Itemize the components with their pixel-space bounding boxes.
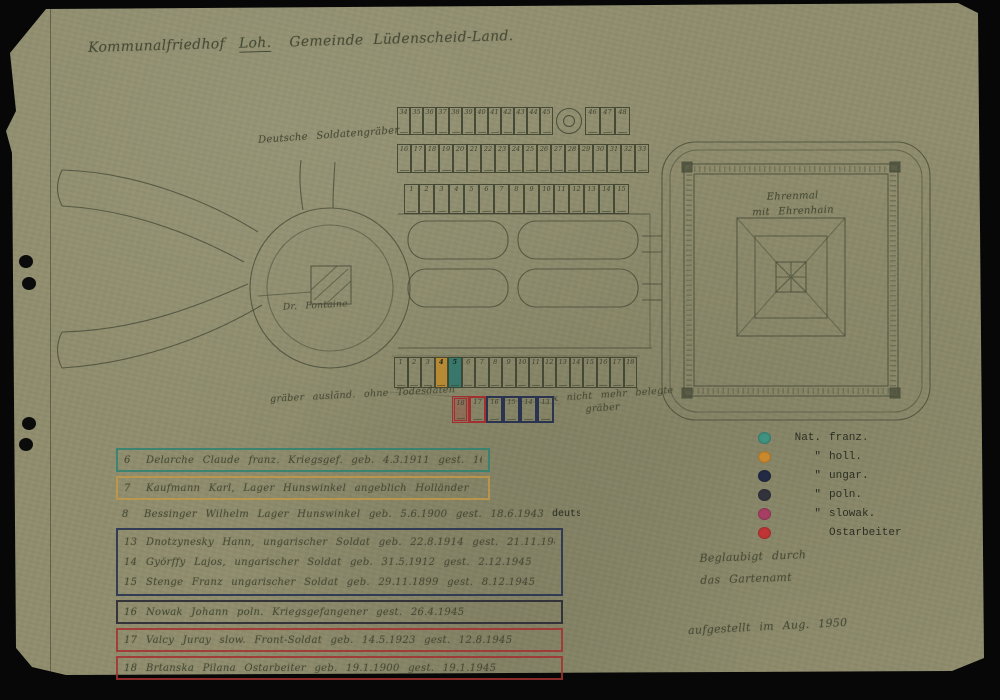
- grave-cell: 18: [624, 357, 638, 388]
- grave-cell: 19: [439, 144, 453, 173]
- grave-note-number: 7: [124, 483, 138, 494]
- grave-number: 12: [545, 359, 553, 366]
- grave-inscription-scribble: [470, 167, 479, 171]
- grave-inscription-scribble: [407, 208, 416, 212]
- grave-note-number: 6: [124, 455, 138, 466]
- legend-ditto-mark: Nat.: [785, 432, 821, 444]
- grave-number: 40: [477, 109, 485, 116]
- grave-note-text: Bessinger Wilhelm Lager Hunswinkel geb. …: [144, 509, 544, 520]
- grave-inscription-scribble: [399, 129, 407, 133]
- grave-grid-row-bottom: 123456789101112131415: [404, 184, 629, 214]
- grave-note-box-red: 18Brtanska Pilana Ostarbeiter geb. 19.1.…: [116, 656, 563, 680]
- legend-ditto-mark: ": [785, 470, 821, 482]
- grave-inscription-scribble: [428, 167, 437, 171]
- grave-number: 29: [582, 146, 590, 153]
- grave-cell: 12: [543, 357, 557, 388]
- grave-cell: 41: [488, 107, 501, 135]
- grave-cell: 42: [501, 107, 514, 135]
- grave-cell: 13: [584, 184, 599, 214]
- legend-item: "ungar.: [758, 467, 902, 485]
- grave-inscription-scribble: [559, 382, 567, 386]
- title-underlined-word: Loh.: [239, 35, 272, 53]
- grave-inscription-scribble: [541, 416, 550, 420]
- grave-inscription-scribble: [618, 129, 627, 133]
- grave-note-text: Dnotzynesky Hann, ungarischer Soldat geb…: [146, 537, 555, 548]
- legend-label: holl.: [829, 451, 862, 463]
- grave-cell: 46: [585, 107, 600, 135]
- grave-number: 15: [617, 186, 625, 193]
- grave-inscription-scribble: [596, 167, 605, 171]
- grave-number: 36: [425, 109, 433, 116]
- grave-note-text: Nowak Johann poln. Kriegsgefangener gest…: [146, 607, 464, 618]
- grave-cell: 28: [565, 144, 579, 173]
- grave-cell: 20: [453, 144, 467, 173]
- grave-number: 2: [412, 359, 416, 366]
- grave-number: 16: [490, 399, 498, 406]
- grave-inscription-scribble: [438, 129, 446, 133]
- grave-number: 31: [610, 146, 618, 153]
- grave-number: 17: [473, 399, 481, 406]
- grave-inscription-scribble: [498, 167, 507, 171]
- grave-inscription-scribble: [586, 382, 594, 386]
- grave-cell: 17: [411, 144, 425, 173]
- grave-inscription-scribble: [451, 129, 459, 133]
- grave-inscription-scribble: [572, 382, 580, 386]
- grave-cell: 29: [579, 144, 593, 173]
- grave-cell: 10: [539, 184, 554, 214]
- left-margin-line: [50, 3, 51, 685]
- grave-inscription-scribble: [437, 208, 446, 212]
- memorial-label: Ehrenmal mit Ehrenhain: [752, 190, 835, 219]
- grave-cell: 33: [635, 144, 649, 173]
- grave-cell: 24: [509, 144, 523, 173]
- grave-note-line: 14Györffy Lajos, ungarischer Soldat geb.…: [124, 552, 555, 572]
- grave-cell: 3: [434, 184, 449, 214]
- grave-note-box-dark: 16Nowak Johann poln. Kriegsgefangener ge…: [116, 600, 563, 624]
- grave-cell: 1: [394, 357, 408, 388]
- grave-inscription-scribble: [512, 167, 521, 171]
- grave-cell: 2: [408, 357, 422, 388]
- legend-label: poln.: [829, 489, 862, 501]
- grave-number: 47: [603, 109, 611, 116]
- grave-number: 4: [454, 186, 458, 193]
- grave-cell: 31: [607, 144, 621, 173]
- grave-cell: 9: [502, 357, 516, 388]
- grave-cell: 9: [524, 184, 539, 214]
- nationality-legend: Nat.franz."holl."ungar."poln."slowak.Ost…: [758, 429, 902, 543]
- grave-note-text: Kaufmann Karl, Lager Hunswinkel angeblic…: [146, 483, 469, 494]
- grave-cell: 12: [569, 184, 584, 214]
- grave-cell: 15: [583, 357, 597, 388]
- grave-number: 35: [412, 109, 420, 116]
- grave-inscription-scribble: [478, 382, 486, 386]
- grave-note-number: 13: [124, 537, 138, 548]
- grave-note-text: Brtanska Pilana Ostarbeiter geb. 19.1.19…: [146, 663, 496, 674]
- grave-inscription-scribble: [545, 382, 553, 386]
- grave-number: 17: [613, 359, 621, 366]
- grave-cell: 13: [556, 357, 570, 388]
- grave-cell: 11: [529, 357, 543, 388]
- grave-note-typed-suffix: deutscher St.Angeh.: [552, 509, 580, 520]
- grave-number: 46: [588, 109, 596, 116]
- punch-hole: [22, 417, 36, 430]
- grave-number: 39: [464, 109, 472, 116]
- grave-number: 15: [507, 399, 515, 406]
- grave-note-box-teal: 6Delarche Claude franz. Kriegsgef. geb. …: [116, 448, 490, 472]
- certification-note: Beglaubigt durch das Gartenamt: [699, 548, 807, 596]
- grave-note-box-blue: 13Dnotzynesky Hann, ungarischer Soldat g…: [116, 528, 563, 596]
- grave-inscription-scribble: [540, 167, 549, 171]
- grave-number: 16: [599, 359, 607, 366]
- grave-note-number: 18: [124, 663, 138, 674]
- grave-inscription-scribble: [507, 416, 516, 420]
- grave-note-number: 15: [124, 577, 138, 588]
- grave-inscription-scribble: [582, 167, 591, 171]
- grave-number: 18: [456, 400, 464, 407]
- grave-inscription-scribble: [529, 129, 537, 133]
- certification-line2: das Gartenamt: [700, 570, 807, 596]
- grave-grid-row-top: 343536373839404142434445: [397, 107, 553, 135]
- grave-number: 28: [568, 146, 576, 153]
- grave-number: 26: [540, 146, 548, 153]
- grave-cell: 6: [479, 184, 494, 214]
- grave-cell: 1: [404, 184, 419, 214]
- grave-note-number: 8: [122, 509, 136, 520]
- grave-number: 13: [587, 186, 595, 193]
- grave-inscription-scribble: [464, 382, 472, 386]
- grave-inscription-scribble: [542, 208, 551, 212]
- grave-number: 4: [439, 359, 444, 366]
- grave-number: 5: [452, 359, 457, 366]
- grave-number: 17: [414, 146, 422, 153]
- grave-cell: 4: [435, 357, 449, 388]
- grave-inscription-scribble: [572, 208, 581, 212]
- grave-inscription-scribble: [473, 416, 482, 420]
- grave-cell: 35: [410, 107, 423, 135]
- grave-cell: 18: [425, 144, 439, 173]
- grave-cell: 40: [475, 107, 488, 135]
- grave-inscription-scribble: [442, 167, 451, 171]
- legend-color-dot: [758, 527, 771, 539]
- grave-cell: 10: [516, 357, 530, 388]
- legend-ditto-mark: ": [785, 489, 821, 501]
- grave-cell: 5: [448, 357, 462, 388]
- grave-cell: 16: [486, 396, 503, 423]
- legend-ditto-mark: ": [785, 451, 821, 463]
- grave-cell: 43: [514, 107, 527, 135]
- legend-label: franz.: [829, 432, 869, 444]
- grave-cell: 45: [540, 107, 553, 135]
- grave-cell: 38: [449, 107, 462, 135]
- grave-number: 8: [493, 359, 497, 366]
- grave-inscription-scribble: [400, 167, 409, 171]
- grave-inscription-scribble: [422, 208, 431, 212]
- legend-ditto-mark: ": [785, 508, 821, 520]
- grave-note-line: 18Brtanska Pilana Ostarbeiter geb. 19.1.…: [124, 658, 555, 678]
- grave-inscription-scribble: [638, 167, 647, 171]
- foreign-graves-row: 123456789101112131415161718: [394, 357, 637, 388]
- grave-cell: 17: [610, 357, 624, 388]
- grave-inscription-scribble: [613, 382, 621, 386]
- grave-inscription-scribble: [568, 167, 577, 171]
- grave-number: 9: [507, 359, 511, 366]
- grave-cell: 8: [509, 184, 524, 214]
- legend-item: "slowak.: [758, 505, 902, 523]
- grave-cell: 23: [495, 144, 509, 173]
- legend-item: "holl.: [758, 448, 902, 466]
- grave-inscription-scribble: [410, 382, 418, 386]
- grave-number: 11: [532, 359, 540, 366]
- grave-note-row: 8Bessinger Wilhelm Lager Hunswinkel geb.…: [116, 504, 586, 524]
- grave-cell: 8: [489, 357, 503, 388]
- grave-inscription-scribble: [477, 129, 485, 133]
- grave-inscription-scribble: [626, 382, 634, 386]
- grave-grid-row-top-block: 464748: [585, 107, 630, 135]
- grave-note-box-orange: 7Kaufmann Karl, Lager Hunswinkel angebli…: [116, 476, 490, 500]
- grave-number: 32: [624, 146, 632, 153]
- grave-number: 13: [541, 399, 549, 406]
- grave-number: 10: [518, 359, 526, 366]
- grave-number: 18: [626, 359, 634, 366]
- grave-number: 22: [484, 146, 492, 153]
- grave-number: 3: [439, 186, 443, 193]
- grave-cell: 16: [597, 357, 611, 388]
- grave-cell: 34: [397, 107, 410, 135]
- legend-color-dot: [758, 508, 771, 520]
- grave-number: 16: [400, 146, 408, 153]
- grave-note-line: 8Bessinger Wilhelm Lager Hunswinkel geb.…: [122, 504, 580, 524]
- grave-cell: 26: [537, 144, 551, 173]
- grave-number: 14: [602, 186, 610, 193]
- grave-cell: 25: [523, 144, 537, 173]
- grave-cell: 14: [520, 396, 537, 423]
- grave-inscription-scribble: [452, 208, 461, 212]
- legend-color-dot: [758, 451, 771, 463]
- grave-note-line: 7Kaufmann Karl, Lager Hunswinkel angebli…: [124, 478, 482, 498]
- grave-cell: 37: [436, 107, 449, 135]
- grave-number: 7: [499, 186, 503, 193]
- grave-number: 6: [484, 186, 488, 193]
- grave-cell: 27: [551, 144, 565, 173]
- grave-number: 14: [572, 359, 580, 366]
- grave-inscription-scribble: [456, 167, 465, 171]
- grave-number: 14: [524, 399, 532, 406]
- grave-inscription-scribble: [505, 382, 513, 386]
- grave-inscription-scribble: [518, 382, 526, 386]
- grave-inscription-scribble: [503, 129, 511, 133]
- grave-note-text: Stenge Franz ungarischer Soldat geb. 29.…: [146, 577, 535, 588]
- grave-number: 44: [529, 109, 537, 116]
- grave-note-number: 16: [124, 607, 138, 618]
- grave-inscription-scribble: [414, 167, 423, 171]
- grave-inscription-scribble: [464, 129, 472, 133]
- grave-inscription-scribble: [412, 129, 420, 133]
- grave-inscription-scribble: [467, 208, 476, 212]
- grave-note-text: Valcy Juray slow. Front-Soldat geb. 14.5…: [146, 635, 512, 646]
- grave-inscription-scribble: [599, 382, 607, 386]
- grave-number: 21: [470, 146, 478, 153]
- grave-number: 10: [542, 186, 550, 193]
- grave-number: 37: [438, 109, 446, 116]
- grave-inscription-scribble: [456, 415, 464, 419]
- grave-number: 23: [498, 146, 506, 153]
- grave-cell: 36: [423, 107, 436, 135]
- grave-number: 9: [529, 186, 533, 193]
- punch-hole: [22, 277, 36, 290]
- grave-inscription-scribble: [532, 382, 540, 386]
- grave-inscription-scribble: [617, 208, 626, 212]
- grave-number: 19: [442, 146, 450, 153]
- grave-cell: 4: [449, 184, 464, 214]
- legend-label: slowak.: [829, 508, 875, 520]
- grave-number: 18: [428, 146, 436, 153]
- grave-number: 8: [514, 186, 518, 193]
- legend-color-dot: [758, 432, 771, 444]
- grave-note-number: 17: [124, 635, 138, 646]
- grave-inscription-scribble: [490, 129, 498, 133]
- grave-inscription-scribble: [490, 416, 499, 420]
- grave-cell: 11: [554, 184, 569, 214]
- grave-number: 30: [596, 146, 604, 153]
- grave-cell: 5: [464, 184, 479, 214]
- grave-cell: 17: [469, 396, 486, 423]
- grave-cell: 18: [452, 396, 469, 423]
- grave-cell: 39: [462, 107, 475, 135]
- grave-number: 1: [399, 359, 403, 366]
- legend-color-dot: [758, 489, 771, 501]
- grave-note-line: 13Dnotzynesky Hann, ungarischer Soldat g…: [124, 532, 555, 552]
- grave-cell: 47: [600, 107, 615, 135]
- grave-inscription-scribble: [587, 208, 596, 212]
- well-symbol: [556, 108, 582, 134]
- grave-number: 33: [638, 146, 646, 153]
- grave-inscription-scribble: [554, 167, 563, 171]
- grave-number: 34: [399, 109, 407, 116]
- graves-annotation-list: 6Delarche Claude franz. Kriegsgef. geb. …: [116, 448, 586, 684]
- grave-inscription-scribble: [397, 382, 405, 386]
- grave-inscription-scribble: [557, 208, 566, 212]
- grave-inscription-scribble: [424, 382, 432, 386]
- grave-inscription-scribble: [610, 167, 619, 171]
- legend-label: ungar.: [829, 470, 869, 482]
- grave-cell: 44: [527, 107, 540, 135]
- scanned-cemetery-plan: { "artifact": { "background_color": "#07…: [0, 0, 1000, 700]
- grave-number: 42: [503, 109, 511, 116]
- grave-note-line: 6Delarche Claude franz. Kriegsgef. geb. …: [124, 450, 482, 470]
- grave-number: 12: [572, 186, 580, 193]
- grave-cell: 7: [475, 357, 489, 388]
- grave-note-line: 15Stenge Franz ungarischer Soldat geb. 2…: [124, 572, 555, 592]
- punch-hole: [19, 438, 33, 451]
- grave-cell: 13: [537, 396, 554, 423]
- grave-cell: 30: [593, 144, 607, 173]
- grave-number: 25: [526, 146, 534, 153]
- grave-inscription-scribble: [451, 382, 459, 386]
- grave-number: 7: [480, 359, 484, 366]
- grave-number: 11: [557, 186, 565, 193]
- grave-inscription-scribble: [491, 382, 499, 386]
- punch-hole: [19, 255, 33, 268]
- grave-number: 45: [542, 109, 550, 116]
- legend-color-dot: [758, 470, 771, 482]
- grave-number: 20: [456, 146, 464, 153]
- grave-cell: 7: [494, 184, 509, 214]
- grave-cell: 21: [467, 144, 481, 173]
- grave-cell: 14: [570, 357, 584, 388]
- legend-item: Nat.franz.: [758, 429, 902, 447]
- grave-inscription-scribble: [542, 129, 550, 133]
- grave-cell: 2: [419, 184, 434, 214]
- grave-number: 1: [409, 186, 413, 193]
- grave-note-line: 16Nowak Johann poln. Kriegsgefangener ge…: [124, 602, 555, 622]
- legend-item: Ostarbeiter: [758, 524, 902, 542]
- grave-number: 2: [424, 186, 428, 193]
- grave-number: 5: [469, 186, 473, 193]
- grave-cell: 3: [421, 357, 435, 388]
- grave-inscription-scribble: [484, 167, 493, 171]
- grave-cell: 16: [397, 144, 411, 173]
- grave-inscription-scribble: [512, 208, 521, 212]
- grave-inscription-scribble: [527, 208, 536, 212]
- grave-note-line: 17Valcy Juray slow. Front-Soldat geb. 14…: [124, 630, 555, 650]
- legend-label: Ostarbeiter: [829, 527, 902, 539]
- grave-inscription-scribble: [602, 208, 611, 212]
- grave-number: 41: [490, 109, 498, 116]
- grave-grid-row-middle: 161718192021222324252627282930313233: [397, 144, 649, 173]
- grave-cell: 32: [621, 144, 635, 173]
- grave-note-text: Györffy Lajos, ungarischer Soldat geb. 3…: [146, 557, 532, 568]
- grave-note-box-red: 17Valcy Juray slow. Front-Soldat geb. 14…: [116, 628, 563, 652]
- grave-cell: 48: [615, 107, 630, 135]
- grave-inscription-scribble: [603, 129, 612, 133]
- grave-number: 27: [554, 146, 562, 153]
- grave-number: 48: [618, 109, 626, 116]
- grave-cell: 6: [462, 357, 476, 388]
- grave-note-number: 14: [124, 557, 138, 568]
- grave-inscription-scribble: [524, 416, 533, 420]
- legend-item: "poln.: [758, 486, 902, 504]
- grave-inscription-scribble: [425, 129, 433, 133]
- grave-number: 15: [586, 359, 594, 366]
- marked-graves-row: 181716151413: [452, 396, 554, 423]
- memorial-label-line1: Ehrenmal: [752, 190, 834, 204]
- grave-inscription-scribble: [482, 208, 491, 212]
- grave-inscription-scribble: [516, 129, 524, 133]
- grave-number: 6: [466, 359, 470, 366]
- grave-inscription-scribble: [497, 208, 506, 212]
- grave-cell: 15: [503, 396, 520, 423]
- grave-number: 3: [426, 359, 430, 366]
- grave-number: 38: [451, 109, 459, 116]
- grave-cell: 14: [599, 184, 614, 214]
- grave-inscription-scribble: [588, 129, 597, 133]
- grave-inscription-scribble: [624, 167, 633, 171]
- grave-inscription-scribble: [437, 382, 445, 386]
- grave-number: 24: [512, 146, 520, 153]
- grave-number: 43: [516, 109, 524, 116]
- grave-note-text: Delarche Claude franz. Kriegsgef. geb. 4…: [146, 455, 482, 466]
- grave-number: 13: [559, 359, 567, 366]
- grave-inscription-scribble: [526, 167, 535, 171]
- grave-cell: 22: [481, 144, 495, 173]
- grave-cell: 15: [614, 184, 629, 214]
